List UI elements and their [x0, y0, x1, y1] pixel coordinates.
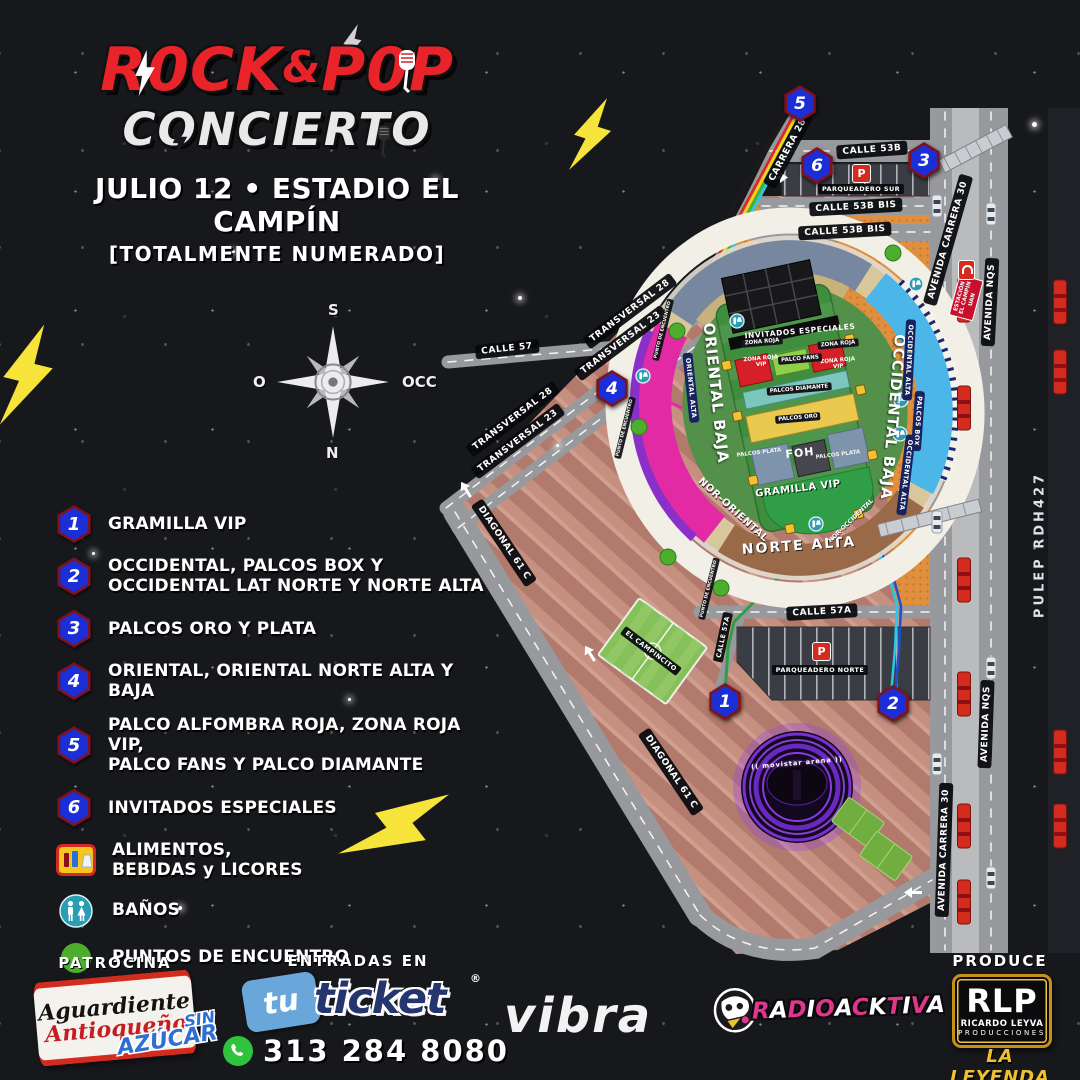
legend-item-label: GRAMILLA VIP — [108, 514, 247, 534]
numbered-note: [TOTALMENTE NUMERADO] — [38, 242, 516, 266]
radioacktiva-wordmark: RADIOACKTIVA — [752, 992, 946, 1025]
legend-item: 2OCCIDENTAL, PALCOS BOX Y OCCIDENTAL LAT… — [56, 556, 486, 597]
compass-north: N — [326, 444, 339, 462]
entrance-badge: 5 — [783, 85, 817, 122]
compass-south: S — [328, 301, 339, 319]
legend-item-label: ALIMENTOS, BEBIDAS y LICORES — [112, 840, 303, 881]
legend-item-label: ORIENTAL, ORIENTAL NORTE ALTA Y BAJA — [108, 661, 486, 702]
produce-label: PRODUCE — [944, 952, 1056, 970]
rlp-logo: RLP RICARDO LEYVA PRODUCCIONES — [952, 974, 1052, 1048]
legend-item: 6INVITADOS ESPECIALES — [56, 789, 486, 827]
event-logo-title: R0CK&P0P — [38, 40, 516, 101]
legend-item: 3PALCOS ORO Y PLATA — [56, 610, 486, 648]
rlp-name: RICARDO LEYVA — [961, 1020, 1044, 1029]
legend-item-label: PALCOS ORO Y PLATA — [108, 619, 316, 639]
registered-mark: ® — [470, 972, 481, 985]
restroom-icon — [56, 894, 96, 928]
star — [518, 296, 522, 300]
date-venue: JULIO 12 • ESTADIO EL CAMPÍN — [38, 172, 516, 238]
legend-item-label: INVITADOS ESPECIALES — [108, 798, 337, 818]
compass-rose: S O OCC N — [271, 320, 395, 444]
entrance-badge: 2 — [876, 685, 910, 722]
entrance-badge: 3 — [907, 142, 941, 179]
legend-item-label: PALCO ALFOMBRA ROJA, ZONA ROJA VIP, PALC… — [108, 715, 486, 776]
tuticket-logo: tu ticket ® — [238, 972, 478, 1034]
entrance-number-badge: 1 — [56, 505, 92, 543]
rlp-sub: PRODUCCIONES — [958, 1030, 1046, 1037]
radioacktiva-logo: RADIOACKTIVA — [711, 980, 945, 1038]
entrance-badge: 4 — [595, 370, 629, 407]
entrance-number-badge: 4 — [56, 662, 92, 700]
rlp-tagline: LA LEYENDA — [936, 1046, 1064, 1080]
radioacktiva-letter: T — [886, 993, 903, 1020]
star — [556, 444, 559, 447]
vibra-logo: vibra — [504, 988, 652, 1044]
street-label: PARQUEADERO NORTE — [772, 665, 868, 675]
entrance-number-badge: 2 — [56, 557, 92, 595]
legend-item: 5PALCO ALFOMBRA ROJA, ZONA ROJA VIP, PAL… — [56, 715, 486, 776]
parking-icon: P — [852, 164, 871, 183]
legend-item: 1GRAMILLA VIP — [56, 505, 486, 543]
header: R0CK&P0P CONCIERTO JULIO 12 • ESTADIO EL… — [38, 40, 516, 266]
radioacktiva-letter: K — [868, 994, 887, 1021]
arena — [737, 727, 857, 847]
entrance-badge: 6 — [800, 147, 834, 184]
patrocina-label: PATROCINA — [30, 954, 200, 972]
compass-west: OCC — [402, 373, 437, 391]
legend-item-label: OCCIDENTAL, PALCOS BOX Y OCCIDENTAL LAT … — [108, 556, 484, 597]
rlp-initials: RLP — [966, 985, 1037, 1017]
transmilenio-station-icon — [958, 260, 975, 280]
legend-service-item: ALIMENTOS, BEBIDAS y LICORES — [56, 840, 486, 881]
radioacktiva-letter: C — [851, 995, 869, 1022]
legend-item: 4ORIENTAL, ORIENTAL NORTE ALTA Y BAJA — [56, 661, 486, 702]
parking-icon: P — [812, 642, 831, 661]
street-label: PARQUEADERO SUR — [818, 184, 904, 194]
food-icon — [56, 844, 96, 876]
radioacktiva-letter: A — [927, 992, 946, 1019]
radioacktiva-letter: R — [752, 998, 771, 1025]
tuticket-word: ticket — [314, 974, 446, 1024]
star — [1032, 122, 1037, 127]
legend-numbered-list: 1GRAMILLA VIP2OCCIDENTAL, PALCOS BOX Y O… — [56, 505, 486, 827]
tuticket-mark: tu — [240, 971, 321, 1034]
entrance-badge: 1 — [708, 683, 742, 720]
legend-item-label: BAÑOS — [112, 900, 180, 920]
radioacktiva-letter: O — [815, 996, 835, 1023]
entrance-number-badge: 3 — [56, 610, 92, 648]
legend-service-item: BAÑOS — [56, 894, 486, 928]
legend: 1GRAMILLA VIP2OCCIDENTAL, PALCOS BOX Y O… — [56, 505, 486, 988]
event-logo-subtitle: CONCIERTO — [38, 103, 516, 156]
whatsapp-icon — [222, 1035, 254, 1067]
entrance-number-badge: 5 — [56, 726, 92, 764]
radioacktiva-letter: D — [787, 997, 807, 1024]
radioacktiva-letter: A — [769, 997, 788, 1024]
radioacktiva-letter: A — [834, 995, 852, 1022]
whatsapp-row: 313 284 8080 — [222, 1034, 509, 1068]
poster: R0CK&P0P CONCIERTO JULIO 12 • ESTADIO EL… — [0, 0, 1080, 1080]
radioacktiva-letter: V — [910, 993, 927, 1020]
phone-number: 313 284 8080 — [263, 1034, 509, 1068]
street-label: PULEP RDH427 — [1033, 472, 1048, 618]
entrance-number-badge: 6 — [56, 789, 92, 827]
entradas-label: ENTRADAS EN — [258, 952, 458, 970]
compass-east: O — [253, 373, 266, 391]
